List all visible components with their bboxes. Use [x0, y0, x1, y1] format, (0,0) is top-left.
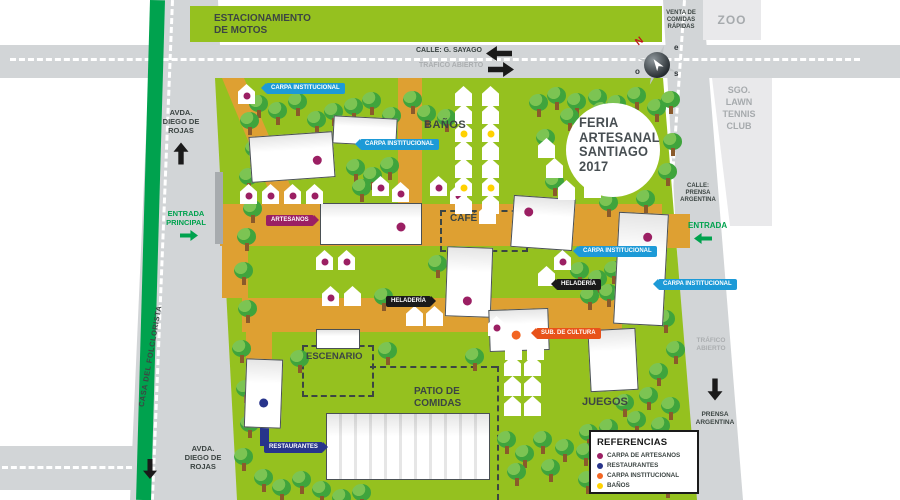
entrada-principal-label: ENTRADA PRINCIPAL — [160, 210, 212, 228]
footpath-entrance — [655, 214, 690, 248]
legend-item: CARPA DE ARTESANOS — [597, 451, 691, 461]
escenario-label: ESCENARIO — [306, 351, 362, 362]
legend-items: CARPA DE ARTESANOSRESTAURANTESCARPA INST… — [597, 451, 691, 491]
footpath — [242, 298, 622, 332]
legend-dot — [597, 453, 603, 459]
compass-o: o — [635, 67, 640, 76]
prensa-argentina-label: PRENSA ARGENTINA — [692, 411, 738, 426]
legend-label: RESTAURANTES — [607, 461, 658, 471]
cafe-label: CAFÉ — [450, 213, 477, 225]
legend-item: BAÑOS — [597, 481, 691, 491]
calle-prensa-label: CALLE: PRENSA ARGENTINA — [678, 183, 718, 204]
compass-icon: N e s o — [630, 36, 686, 94]
legend-label: BAÑOS — [607, 481, 630, 491]
legend-dot — [597, 483, 603, 489]
restaurantes-connector — [260, 424, 269, 446]
banos-label: BAÑOS — [424, 119, 466, 132]
legend-item: CARPA INSTITUCIONAL — [597, 471, 691, 481]
compass-s: s — [674, 69, 678, 78]
event-title: FERIA ARTESANAL SANTIAGO 2017 — [579, 116, 660, 174]
avda-rojas-top-label: AVDA. DIEGO DE ROJAS — [158, 109, 204, 136]
festival-map: ESTACIONAMIENTO DE MOTOS CALLE: G. SAYAG… — [0, 0, 900, 500]
compass-n: N — [633, 35, 645, 48]
compass-e: e — [674, 43, 678, 52]
patio-boundary — [370, 366, 497, 368]
venta-comidas-label: VENTA DE COMIDAS RÁPIDAS — [660, 10, 702, 31]
patio-comidas-label: PATIO DE COMIDAS — [414, 386, 461, 410]
legend-dot — [597, 473, 603, 479]
lane-divider — [2, 466, 132, 469]
legend-label: CARPA DE ARTESANOS — [607, 451, 680, 461]
footpath — [246, 332, 272, 424]
legend-item: RESTAURANTES — [597, 461, 691, 471]
juegos-label: JUEGOS — [582, 396, 628, 409]
legend: REFERENCIAS CARPA DE ARTESANOSRESTAURANT… — [589, 430, 699, 494]
legend-dot — [597, 463, 603, 469]
estacionamiento-label: ESTACIONAMIENTO DE MOTOS — [214, 13, 311, 37]
footpath — [398, 78, 422, 208]
trafico-abierto-right-label: TRÁFICO ABIERTO — [692, 337, 730, 352]
lane-divider — [10, 58, 860, 61]
patio-boundary — [497, 366, 499, 500]
avda-rojas-bottom-label: AVDA. DIEGO DE ROJAS — [180, 445, 226, 472]
entrada-right-label: ENTRADA — [688, 221, 727, 230]
footpath — [222, 246, 248, 298]
trafico-abierto-top-label: TRÁFICO ABIERTO — [419, 62, 483, 70]
tennis-club-label: SGO. LAWN TENNIS CLUB — [708, 84, 770, 132]
zoo-label: ZOO — [703, 13, 761, 27]
wall-marker — [215, 172, 223, 244]
legend-title: REFERENCIAS — [597, 437, 691, 448]
legend-label: CARPA INSTITUCIONAL — [607, 471, 679, 481]
calle-sayago-label: CALLE: G. SAYAGO — [416, 47, 482, 55]
event-title-badge: FERIA ARTESANAL SANTIAGO 2017 — [566, 103, 660, 197]
